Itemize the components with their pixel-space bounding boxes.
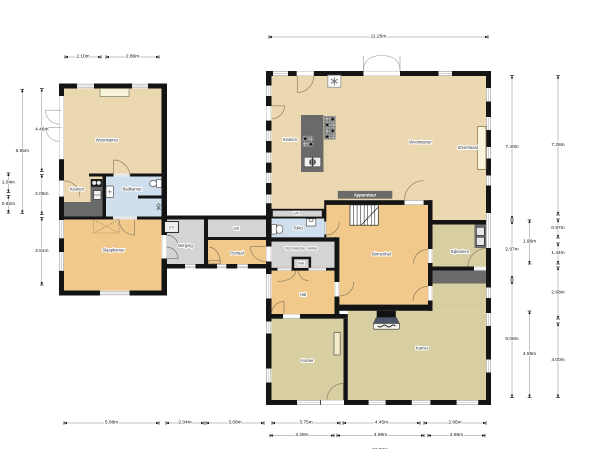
- svg-text:Keuken: Keuken: [283, 137, 298, 142]
- svg-text:1.04m: 1.04m: [2, 179, 15, 185]
- svg-text:Kamer: Kamer: [416, 346, 429, 351]
- svg-text:Technische ruimte: Technische ruimte: [285, 246, 318, 251]
- svg-text:0.92m: 0.92m: [2, 201, 15, 207]
- svg-text:Kamer: Kamer: [301, 358, 314, 363]
- svg-text:3.08m: 3.08m: [228, 420, 241, 426]
- svg-text:Slaapkamer: Slaapkamer: [102, 248, 125, 253]
- svg-text:CV: CV: [169, 225, 175, 230]
- svg-text:4.45m: 4.45m: [375, 420, 388, 426]
- svg-text:11.25m: 11.25m: [371, 34, 387, 40]
- svg-text:2.66m: 2.66m: [448, 420, 461, 426]
- svg-text:7.28m: 7.28m: [551, 142, 564, 148]
- svg-text:Woonkamer: Woonkamer: [96, 138, 119, 143]
- svg-text:Hal: Hal: [300, 292, 306, 297]
- svg-text:1.96m: 1.96m: [523, 239, 536, 245]
- svg-text:Berging: Berging: [178, 243, 193, 248]
- svg-text:4.59m: 4.59m: [523, 351, 536, 357]
- svg-text:VK: VK: [234, 226, 240, 231]
- svg-text:Badkamer: Badkamer: [122, 187, 142, 192]
- svg-text:VK: VK: [294, 212, 300, 216]
- svg-text:6.08m: 6.08m: [505, 336, 518, 342]
- svg-text:2.65m: 2.65m: [450, 432, 463, 438]
- svg-text:MK: MK: [299, 262, 305, 266]
- svg-text:3.28m: 3.28m: [295, 432, 308, 438]
- svg-text:4.46m: 4.46m: [35, 127, 48, 133]
- svg-text:2.68m: 2.68m: [551, 290, 564, 296]
- svg-text:2.10m: 2.10m: [76, 54, 89, 60]
- svg-text:0.97m: 0.97m: [551, 225, 564, 231]
- svg-text:6.65m: 6.65m: [16, 148, 29, 154]
- svg-text:7.40m: 7.40m: [505, 144, 518, 150]
- svg-text:Woonkamer: Woonkamer: [409, 140, 432, 145]
- svg-text:Portaal: Portaal: [230, 251, 243, 256]
- svg-text:2.86m: 2.86m: [126, 54, 139, 60]
- svg-text:2.08m: 2.08m: [35, 191, 48, 197]
- svg-text:Toilet: Toilet: [293, 226, 304, 231]
- svg-text:Sfeerhaard: Sfeerhaard: [458, 145, 479, 150]
- svg-text:Binnenhal: Binnenhal: [372, 252, 391, 257]
- svg-text:Bijkeuken: Bijkeuken: [451, 249, 470, 254]
- svg-text:4.00m: 4.00m: [551, 357, 564, 363]
- svg-text:Apparatuur: Apparatuur: [353, 192, 377, 197]
- svg-text:2.04m: 2.04m: [178, 420, 191, 426]
- svg-text:3.51m: 3.51m: [35, 248, 48, 254]
- svg-text:Keuken: Keuken: [70, 187, 85, 192]
- svg-text:1.44m: 1.44m: [551, 250, 564, 256]
- svg-text:4.99m: 4.99m: [374, 432, 387, 438]
- svg-text:3.75m: 3.75m: [299, 420, 312, 426]
- svg-text:5.08m: 5.08m: [105, 420, 118, 426]
- svg-text:2.97m: 2.97m: [505, 247, 518, 253]
